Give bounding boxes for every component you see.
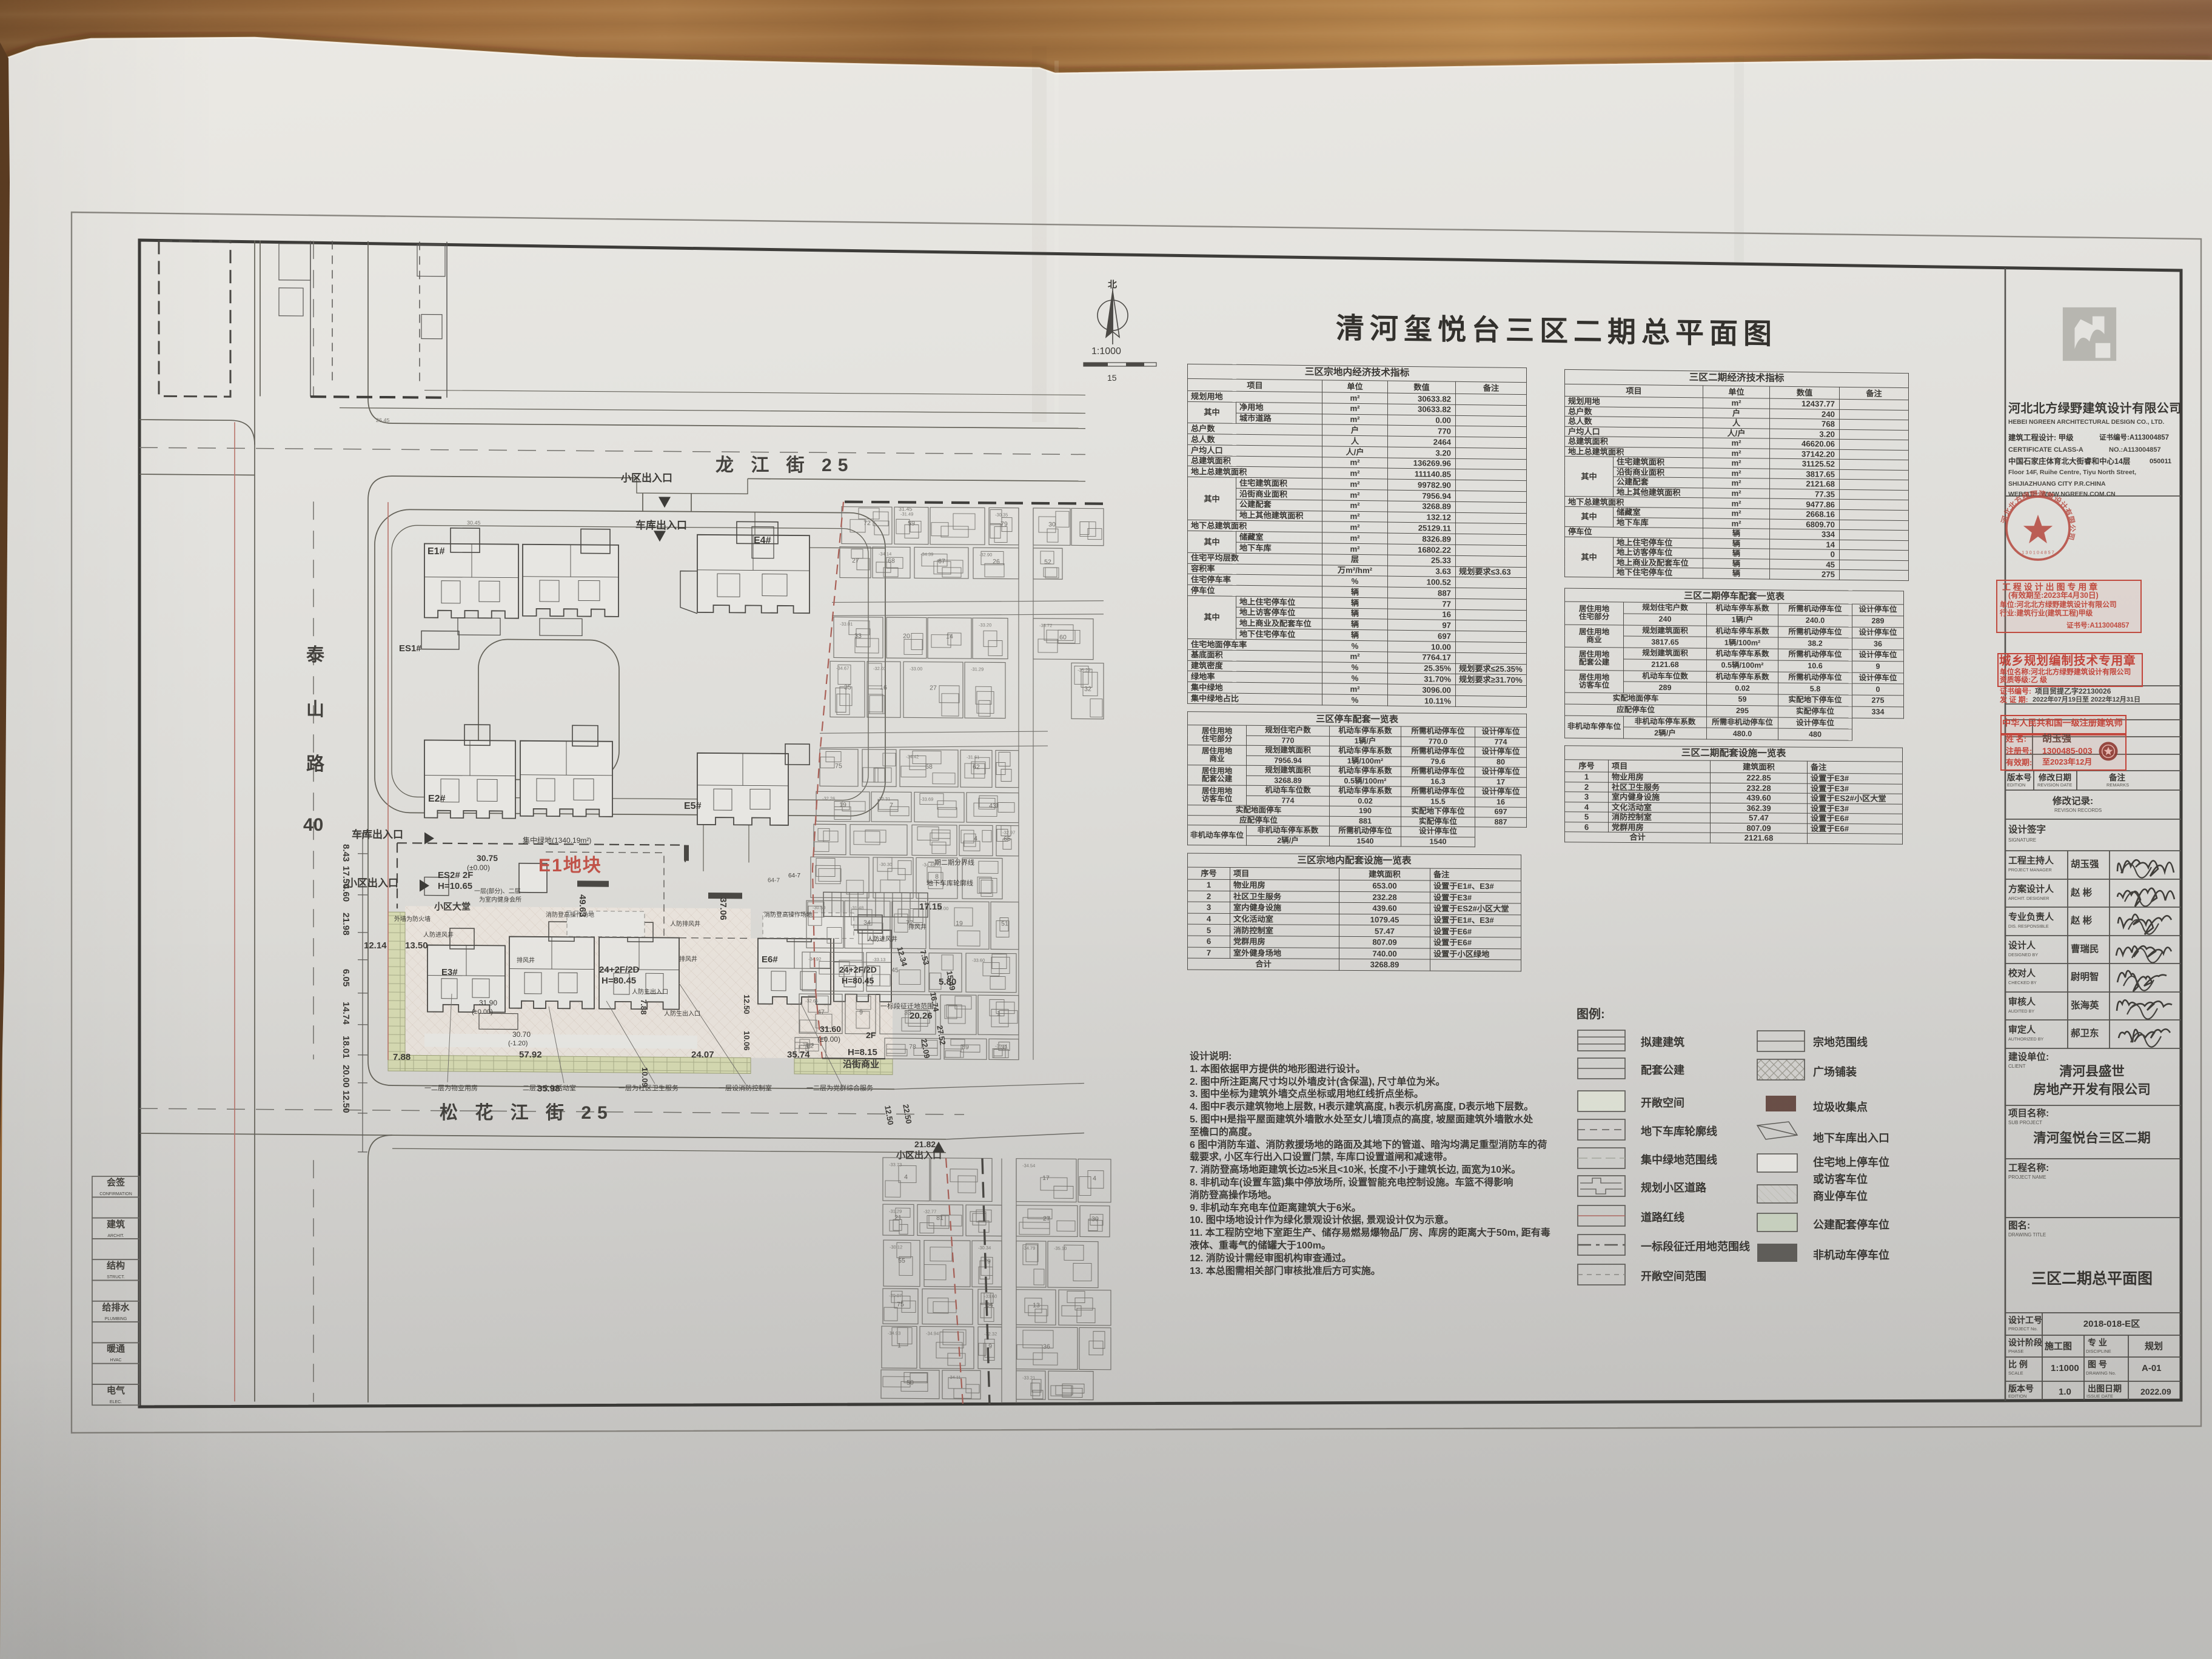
svg-text:-34.14: -34.14 bbox=[879, 551, 891, 557]
svg-text:-30.12: -30.12 bbox=[890, 1244, 902, 1250]
svg-text:14: 14 bbox=[946, 633, 953, 640]
svg-text:4: 4 bbox=[1093, 1175, 1096, 1182]
svg-text:-30.34: -30.34 bbox=[978, 1245, 991, 1250]
svg-text:-32.03: -32.03 bbox=[873, 666, 886, 671]
svg-text:13: 13 bbox=[1033, 1302, 1040, 1309]
svg-text:30.45: 30.45 bbox=[467, 520, 481, 526]
svg-text:78: 78 bbox=[909, 1043, 916, 1050]
svg-text:30: 30 bbox=[1048, 521, 1056, 528]
svg-text:16: 16 bbox=[880, 684, 887, 691]
svg-text:35: 35 bbox=[844, 684, 851, 691]
svg-text:-34.93: -34.93 bbox=[888, 1330, 900, 1336]
svg-text:-35.29: -35.29 bbox=[1078, 667, 1090, 672]
svg-text:-30.30: -30.30 bbox=[879, 862, 892, 867]
svg-text:68: 68 bbox=[888, 557, 895, 565]
svg-text:-33.69: -33.69 bbox=[920, 797, 933, 802]
svg-text:-30.35: -30.35 bbox=[995, 512, 1008, 517]
svg-text:-33.13: -33.13 bbox=[873, 957, 885, 962]
svg-text:26.45: 26.45 bbox=[376, 417, 390, 423]
svg-text:-33.73: -33.73 bbox=[889, 1162, 902, 1167]
svg-text:-34.67: -34.67 bbox=[836, 666, 849, 671]
svg-text:-30.50: -30.50 bbox=[813, 905, 825, 910]
svg-text:64-7: 64-7 bbox=[768, 877, 780, 884]
svg-text:7: 7 bbox=[890, 802, 893, 809]
svg-text:26: 26 bbox=[993, 558, 1000, 565]
svg-text:-32.32: -32.32 bbox=[984, 1331, 997, 1336]
svg-text:67: 67 bbox=[938, 558, 945, 565]
svg-text:-31.49: -31.49 bbox=[900, 511, 913, 517]
svg-text:19: 19 bbox=[956, 920, 963, 927]
svg-text:1: 1 bbox=[997, 1010, 1000, 1017]
svg-text:-31.29: -31.29 bbox=[971, 666, 984, 672]
svg-text:-34.79: -34.79 bbox=[1022, 1245, 1035, 1251]
svg-text:27: 27 bbox=[930, 685, 937, 692]
svg-text:36: 36 bbox=[1043, 1343, 1050, 1350]
svg-text:62: 62 bbox=[973, 763, 980, 771]
svg-text:-34.54: -34.54 bbox=[1022, 1163, 1035, 1168]
svg-text:75: 75 bbox=[835, 762, 842, 769]
svg-text:-33.00: -33.00 bbox=[910, 666, 922, 671]
svg-text:-31.61: -31.61 bbox=[967, 754, 979, 760]
svg-text:20: 20 bbox=[903, 632, 910, 640]
svg-text:-35.11: -35.11 bbox=[995, 1043, 1008, 1048]
svg-text:-30.07: -30.07 bbox=[889, 1293, 902, 1298]
svg-text:-30.31: -30.31 bbox=[877, 796, 890, 802]
svg-text:43: 43 bbox=[989, 802, 996, 809]
svg-text:4: 4 bbox=[974, 835, 977, 842]
svg-text:50: 50 bbox=[907, 1379, 914, 1386]
svg-text:-34.42: -34.42 bbox=[906, 754, 919, 759]
svg-text:-33.01: -33.01 bbox=[840, 622, 853, 627]
svg-text:45: 45 bbox=[891, 967, 899, 974]
svg-text:75: 75 bbox=[897, 1301, 904, 1308]
svg-text:-33.60: -33.60 bbox=[972, 957, 985, 963]
svg-text:27: 27 bbox=[852, 557, 859, 565]
svg-text:-32.90: -32.90 bbox=[979, 552, 992, 557]
svg-text:89: 89 bbox=[962, 1044, 969, 1051]
svg-text:-33.20: -33.20 bbox=[979, 622, 991, 628]
svg-text:-32.65: -32.65 bbox=[805, 998, 818, 1004]
svg-text:-32.26: -32.26 bbox=[822, 796, 835, 801]
svg-text:-34.11: -34.11 bbox=[948, 1375, 961, 1380]
svg-text:-31.48: -31.48 bbox=[851, 905, 863, 911]
svg-text:65: 65 bbox=[1004, 836, 1011, 843]
svg-text:9: 9 bbox=[859, 1009, 863, 1016]
svg-text:1: 1 bbox=[897, 1342, 901, 1349]
svg-text:-32.97: -32.97 bbox=[1002, 830, 1015, 836]
svg-text:68: 68 bbox=[925, 763, 933, 771]
svg-text:30: 30 bbox=[1091, 1216, 1099, 1223]
svg-text:-33.99: -33.99 bbox=[801, 1042, 814, 1047]
svg-text:17: 17 bbox=[1042, 1175, 1050, 1182]
svg-text:-35.72: -35.72 bbox=[1039, 623, 1052, 628]
svg-text:4: 4 bbox=[904, 1173, 908, 1181]
svg-text:34: 34 bbox=[863, 919, 871, 927]
svg-text:33: 33 bbox=[854, 632, 862, 640]
svg-text:-35.10: -35.10 bbox=[1054, 1245, 1067, 1251]
svg-text:72: 72 bbox=[863, 520, 871, 527]
svg-text:-32.77: -32.77 bbox=[923, 1209, 936, 1215]
svg-text:47: 47 bbox=[817, 1008, 825, 1016]
svg-text:32: 32 bbox=[1084, 686, 1091, 693]
svg-text:81: 81 bbox=[936, 1215, 943, 1222]
svg-text:51: 51 bbox=[1001, 920, 1008, 928]
svg-text:-33.21: -33.21 bbox=[1022, 1375, 1035, 1381]
svg-text:-31.29: -31.29 bbox=[889, 1208, 902, 1214]
svg-text:55: 55 bbox=[898, 1257, 905, 1264]
svg-text:-34.39: -34.39 bbox=[920, 552, 933, 557]
svg-text:79: 79 bbox=[1000, 520, 1008, 528]
svg-text:19: 19 bbox=[839, 802, 846, 809]
svg-text:-34.94: -34.94 bbox=[926, 1331, 939, 1336]
svg-text:60: 60 bbox=[1059, 634, 1067, 641]
svg-text:52: 52 bbox=[1044, 558, 1051, 566]
svg-text:59: 59 bbox=[908, 520, 915, 527]
svg-text:21: 21 bbox=[894, 1214, 902, 1221]
svg-text:-33.60: -33.60 bbox=[984, 1293, 997, 1299]
svg-text:8: 8 bbox=[935, 873, 939, 880]
svg-text:27: 27 bbox=[1043, 1215, 1050, 1222]
